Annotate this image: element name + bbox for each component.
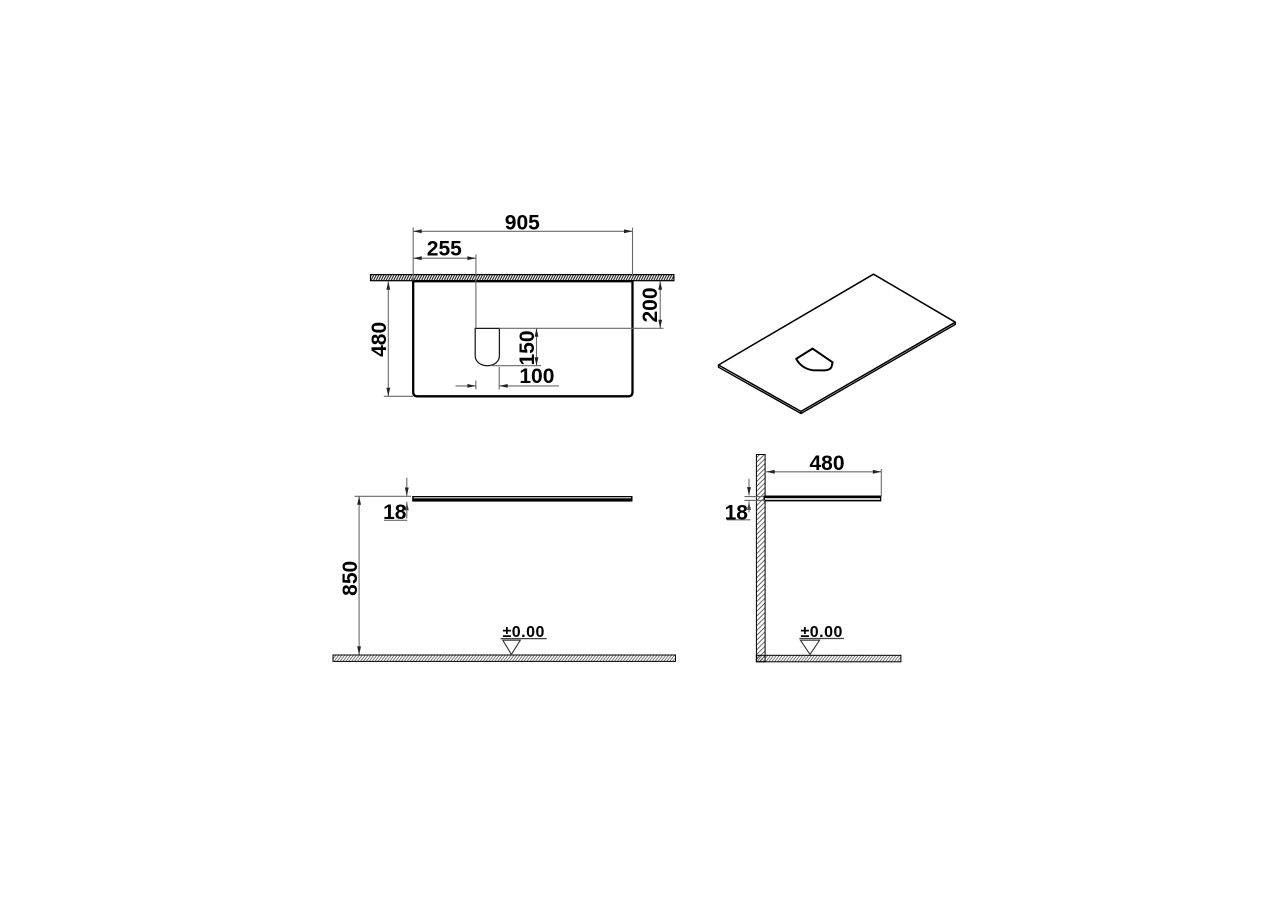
svg-text:905: 905 [505, 211, 540, 234]
svg-text:18: 18 [383, 501, 407, 524]
svg-text:480: 480 [368, 322, 391, 357]
svg-text:150: 150 [516, 330, 539, 365]
svg-text:100: 100 [519, 365, 554, 388]
svg-text:18: 18 [725, 501, 749, 524]
svg-text:480: 480 [809, 452, 844, 475]
svg-text:255: 255 [427, 238, 462, 261]
svg-text:200: 200 [639, 287, 662, 322]
svg-text:850: 850 [339, 561, 362, 596]
